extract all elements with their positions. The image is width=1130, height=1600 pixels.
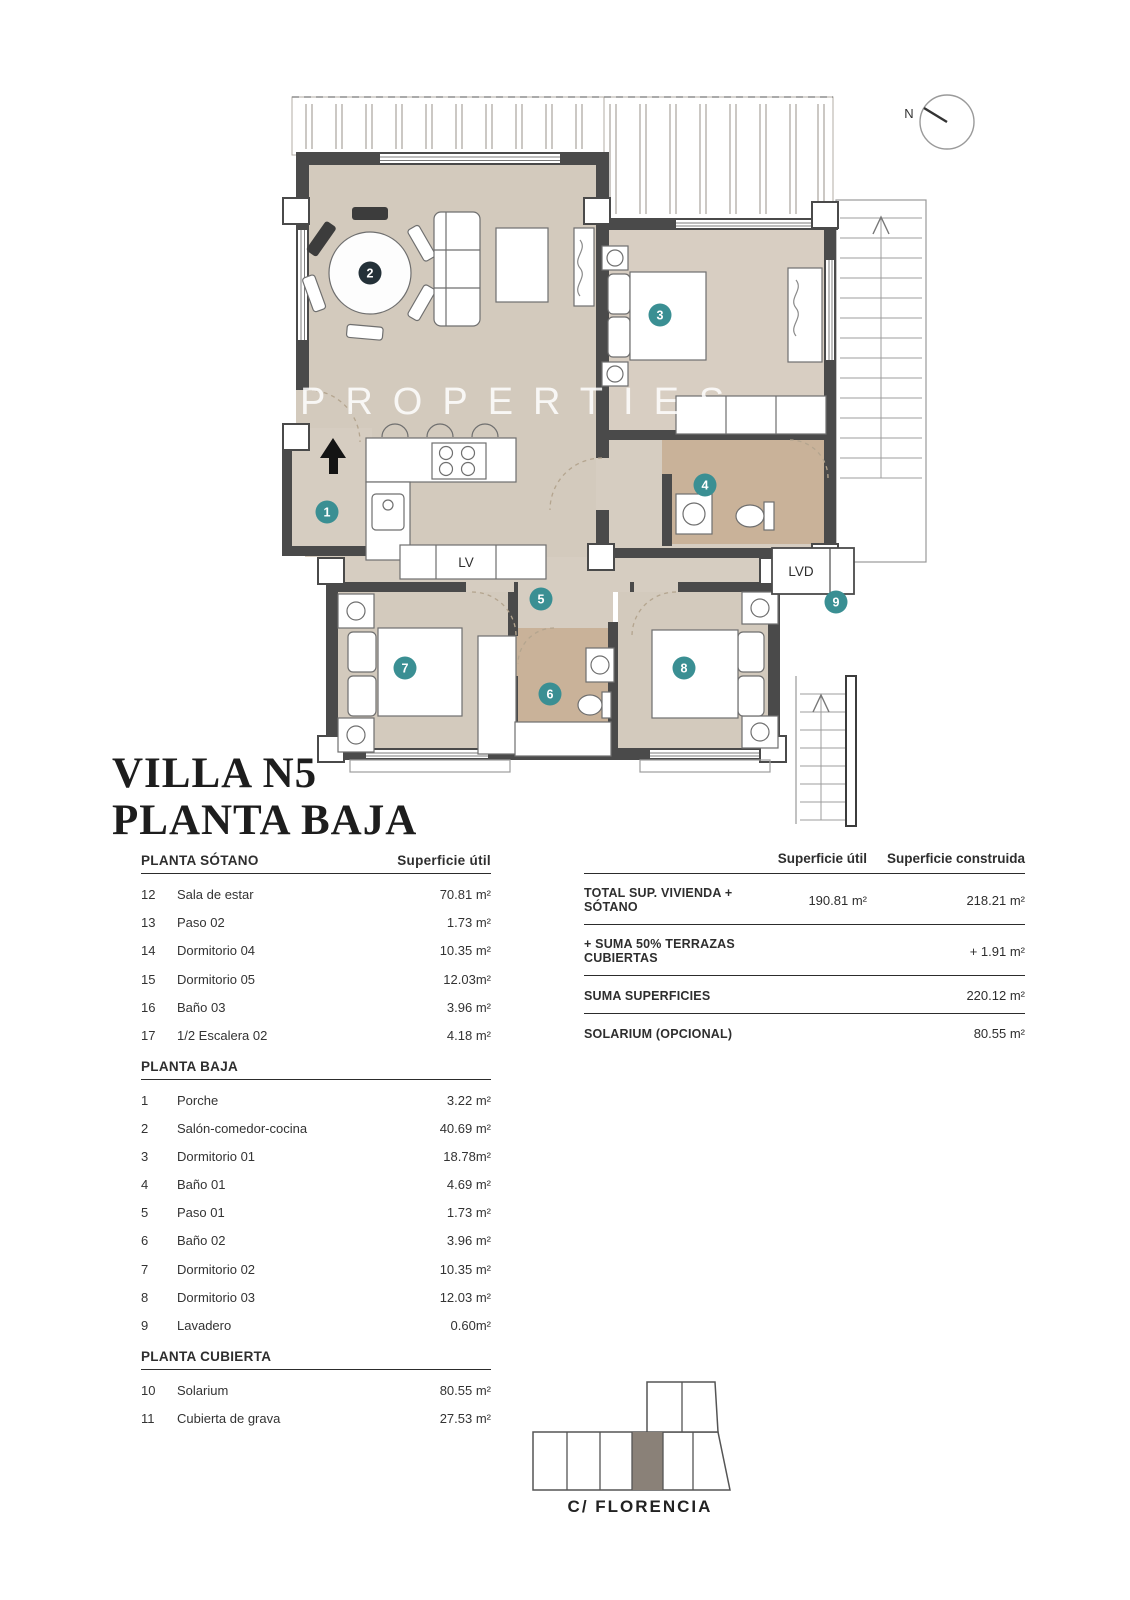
column-header-construida: Superficie construida	[867, 851, 1025, 866]
marker-5: 5	[530, 588, 553, 611]
svg-text:8: 8	[681, 662, 688, 676]
svg-text:3: 3	[657, 309, 664, 323]
stove	[432, 443, 486, 479]
table-row: 5Paso 011.73 m²	[141, 1199, 491, 1227]
column-header-superficie-util: Superficie útil	[397, 853, 491, 868]
north-compass: N	[904, 95, 974, 149]
room-paso-vertical	[604, 438, 668, 557]
summary-header: Superficie útil Superficie construida	[584, 851, 1025, 874]
svg-text:7: 7	[402, 662, 409, 676]
summary-row: + SUMA 50% TERRAZAS CUBIERTAS + 1.91 m²	[584, 925, 1025, 976]
table-row: 3Dormitorio 0118.78m²	[141, 1142, 491, 1170]
table-row: 13Paso 021.73 m²	[141, 909, 491, 937]
tv-unit	[574, 228, 594, 306]
table-row: 9Lavadero0.60m²	[141, 1311, 491, 1339]
table-row: 15Dormitorio 0512.03m²	[141, 965, 491, 993]
table-row: 1Porche3.22 m²	[141, 1080, 491, 1115]
marker-4: 4	[694, 474, 717, 497]
marker-7: 7	[394, 657, 417, 680]
title-line1: VILLA N5	[112, 750, 417, 797]
title-line2: PLANTA BAJA	[112, 797, 417, 844]
table-row: 7Dormitorio 0210.35 m²	[141, 1255, 491, 1283]
summary-row: TOTAL SUP. VIVIENDA + SÓTANO 190.81 m² 2…	[584, 874, 1025, 925]
exterior-stairs-upper	[836, 200, 926, 562]
table-row: 12Sala de estar70.81 m²	[141, 874, 491, 909]
sink	[372, 494, 404, 530]
svg-text:2: 2	[367, 267, 374, 281]
section-title: PLANTA CUBIERTA	[141, 1349, 271, 1364]
street-label: C/ FLORENCIA	[568, 1497, 713, 1516]
svg-text:4: 4	[702, 479, 709, 493]
column-header-util: Superficie útil	[739, 851, 867, 866]
lv-label: LV	[458, 555, 474, 570]
lvd-label: LVD	[788, 564, 814, 579]
site-highlight-plot	[632, 1432, 663, 1490]
table-row: 171/2 Escalera 024.18 m²	[141, 1021, 491, 1049]
summary-row: SOLARIUM (OPCIONAL) 80.55 m²	[584, 1014, 1025, 1051]
svg-text:9: 9	[833, 596, 840, 610]
table-row: 2Salón-comedor-cocina40.69 m²	[141, 1114, 491, 1142]
table-row: 14Dormitorio 0410.35 m²	[141, 937, 491, 965]
table-row: 16Baño 033.96 m²	[141, 993, 491, 1021]
sofa	[434, 212, 480, 326]
svg-text:5: 5	[538, 593, 545, 607]
page-title: VILLA N5 PLANTA BAJA	[112, 750, 417, 844]
marker-9: 9	[825, 591, 848, 614]
section-title: PLANTA SÓTANO	[141, 853, 259, 868]
marker-2: 2	[359, 262, 382, 285]
svg-text:1: 1	[324, 506, 331, 520]
table-row: 4Baño 014.69 m²	[141, 1171, 491, 1199]
page: PROPERTIES 1 2 3 4 5 6 7 8 9 LV LVD N C/…	[0, 0, 1130, 1600]
table-row: 11Cubierta de grava27.53 m²	[141, 1404, 491, 1432]
section-header-sotano: PLANTA SÓTANO Superficie útil	[141, 853, 491, 874]
section-header-baja: PLANTA BAJA	[141, 1059, 491, 1080]
watermark-text: PROPERTIES	[300, 381, 744, 423]
exterior-stairs-lower	[796, 676, 856, 826]
marker-8: 8	[673, 657, 696, 680]
marker-6: 6	[539, 683, 562, 706]
legend-table: PLANTA SÓTANO Superficie útil 12Sala de …	[141, 853, 491, 1432]
table-row: 10Solarium80.55 m²	[141, 1370, 491, 1405]
coffee-table	[496, 228, 548, 302]
marker-3: 3	[649, 304, 672, 327]
marker-1: 1	[316, 501, 339, 524]
summary-row: SUMA SUPERFICIES 220.12 m²	[584, 976, 1025, 1014]
summary-table: Superficie útil Superficie construida TO…	[584, 851, 1025, 1051]
section-title: PLANTA BAJA	[141, 1059, 238, 1074]
site-plan: C/ FLORENCIA	[533, 1382, 730, 1516]
table-row: 8Dormitorio 0312.03 m²	[141, 1283, 491, 1311]
table-row: 6Baño 023.96 m²	[141, 1227, 491, 1255]
svg-text:6: 6	[547, 688, 554, 702]
section-header-cubierta: PLANTA CUBIERTA	[141, 1349, 491, 1370]
north-label: N	[904, 106, 913, 121]
